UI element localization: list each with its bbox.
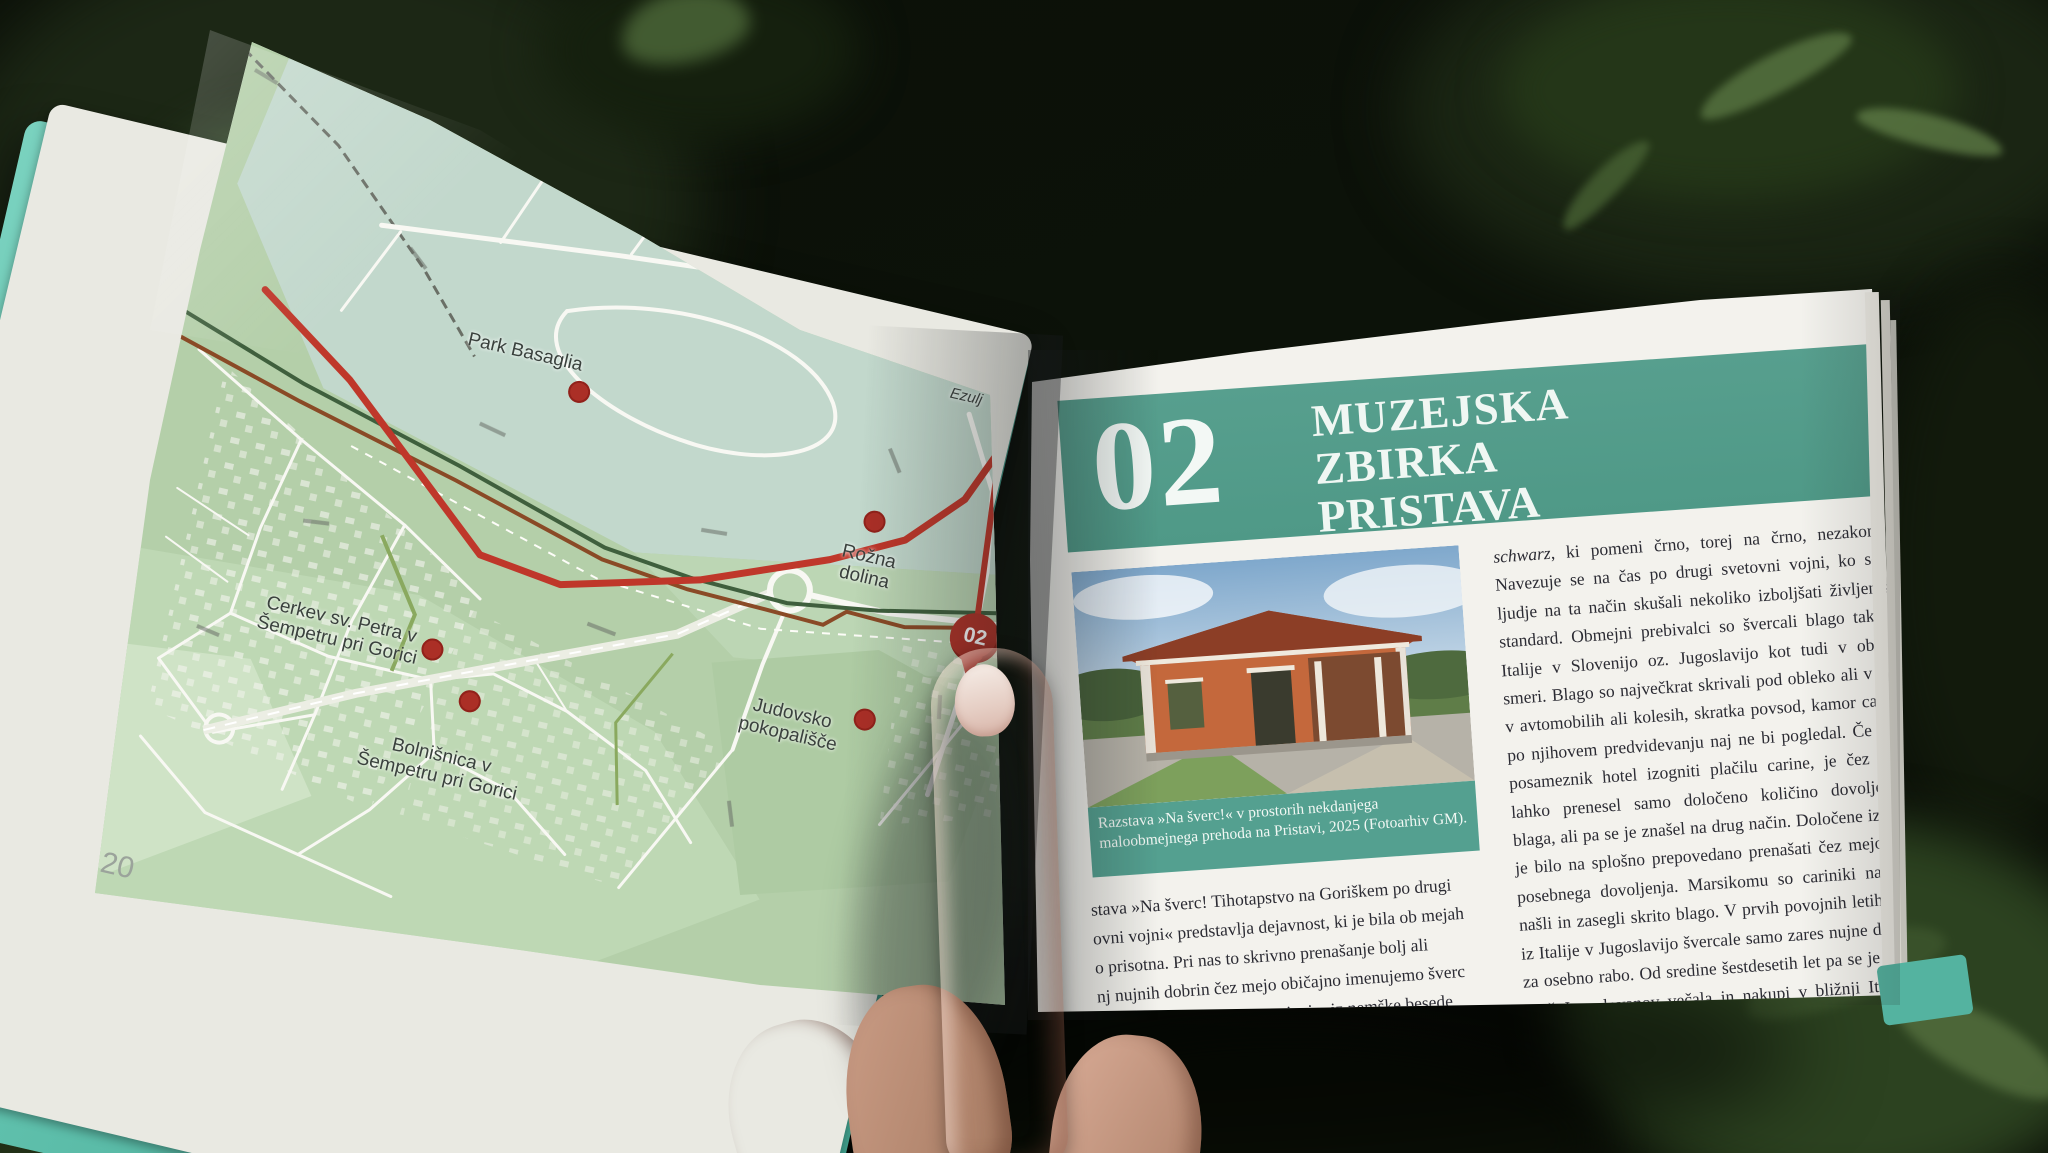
map-label: Rožnadolina [835,541,898,593]
map-label: Via Terza Armata [725,242,809,264]
text-column-right: schwarz, ki pomeni črno, torej na črno, … [1492,515,1930,1022]
chapter-title: MUZEJSKA ZBIRKA PRISTAVA [1310,379,1577,541]
map-label: Bolnišnica vŠempetru pri Gorici [355,728,524,805]
thumb [929,646,1069,1153]
body-text: , ki pomeni črno, torej na črno, nezakon… [1495,519,1931,1049]
chapter-number: 02 [1087,386,1229,542]
building-photo-art [1071,545,1475,807]
map-poi-dot [419,636,445,662]
right-page-content: 02 MUZEJSKA ZBIRKA PRISTAVA [1040,322,1943,1020]
leaf-mass [1880,280,2048,840]
map-poi-dot [861,509,887,535]
map-poi-dot [457,688,483,714]
map-label: Judovskopokopališče [736,693,843,756]
cover-edge-right [1876,954,1973,1026]
right-page: 02 MUZEJSKA ZBIRKA PRISTAVA [1020,270,1940,1040]
map-poi-dot [852,706,878,732]
thumbnail-nail [954,663,1016,737]
map-label: Park Basaglia [466,330,585,376]
photo-of-open-book: { "colors":{"banner_teal":"#539b8a","cap… [0,0,2048,1153]
lead-word: schwarz [1493,543,1552,567]
map-label: Cerkev sv. Petra vŠempetru pri Gorici [255,592,424,669]
map-poi-dot [566,379,592,405]
exhibition-building-photo [1071,545,1475,807]
